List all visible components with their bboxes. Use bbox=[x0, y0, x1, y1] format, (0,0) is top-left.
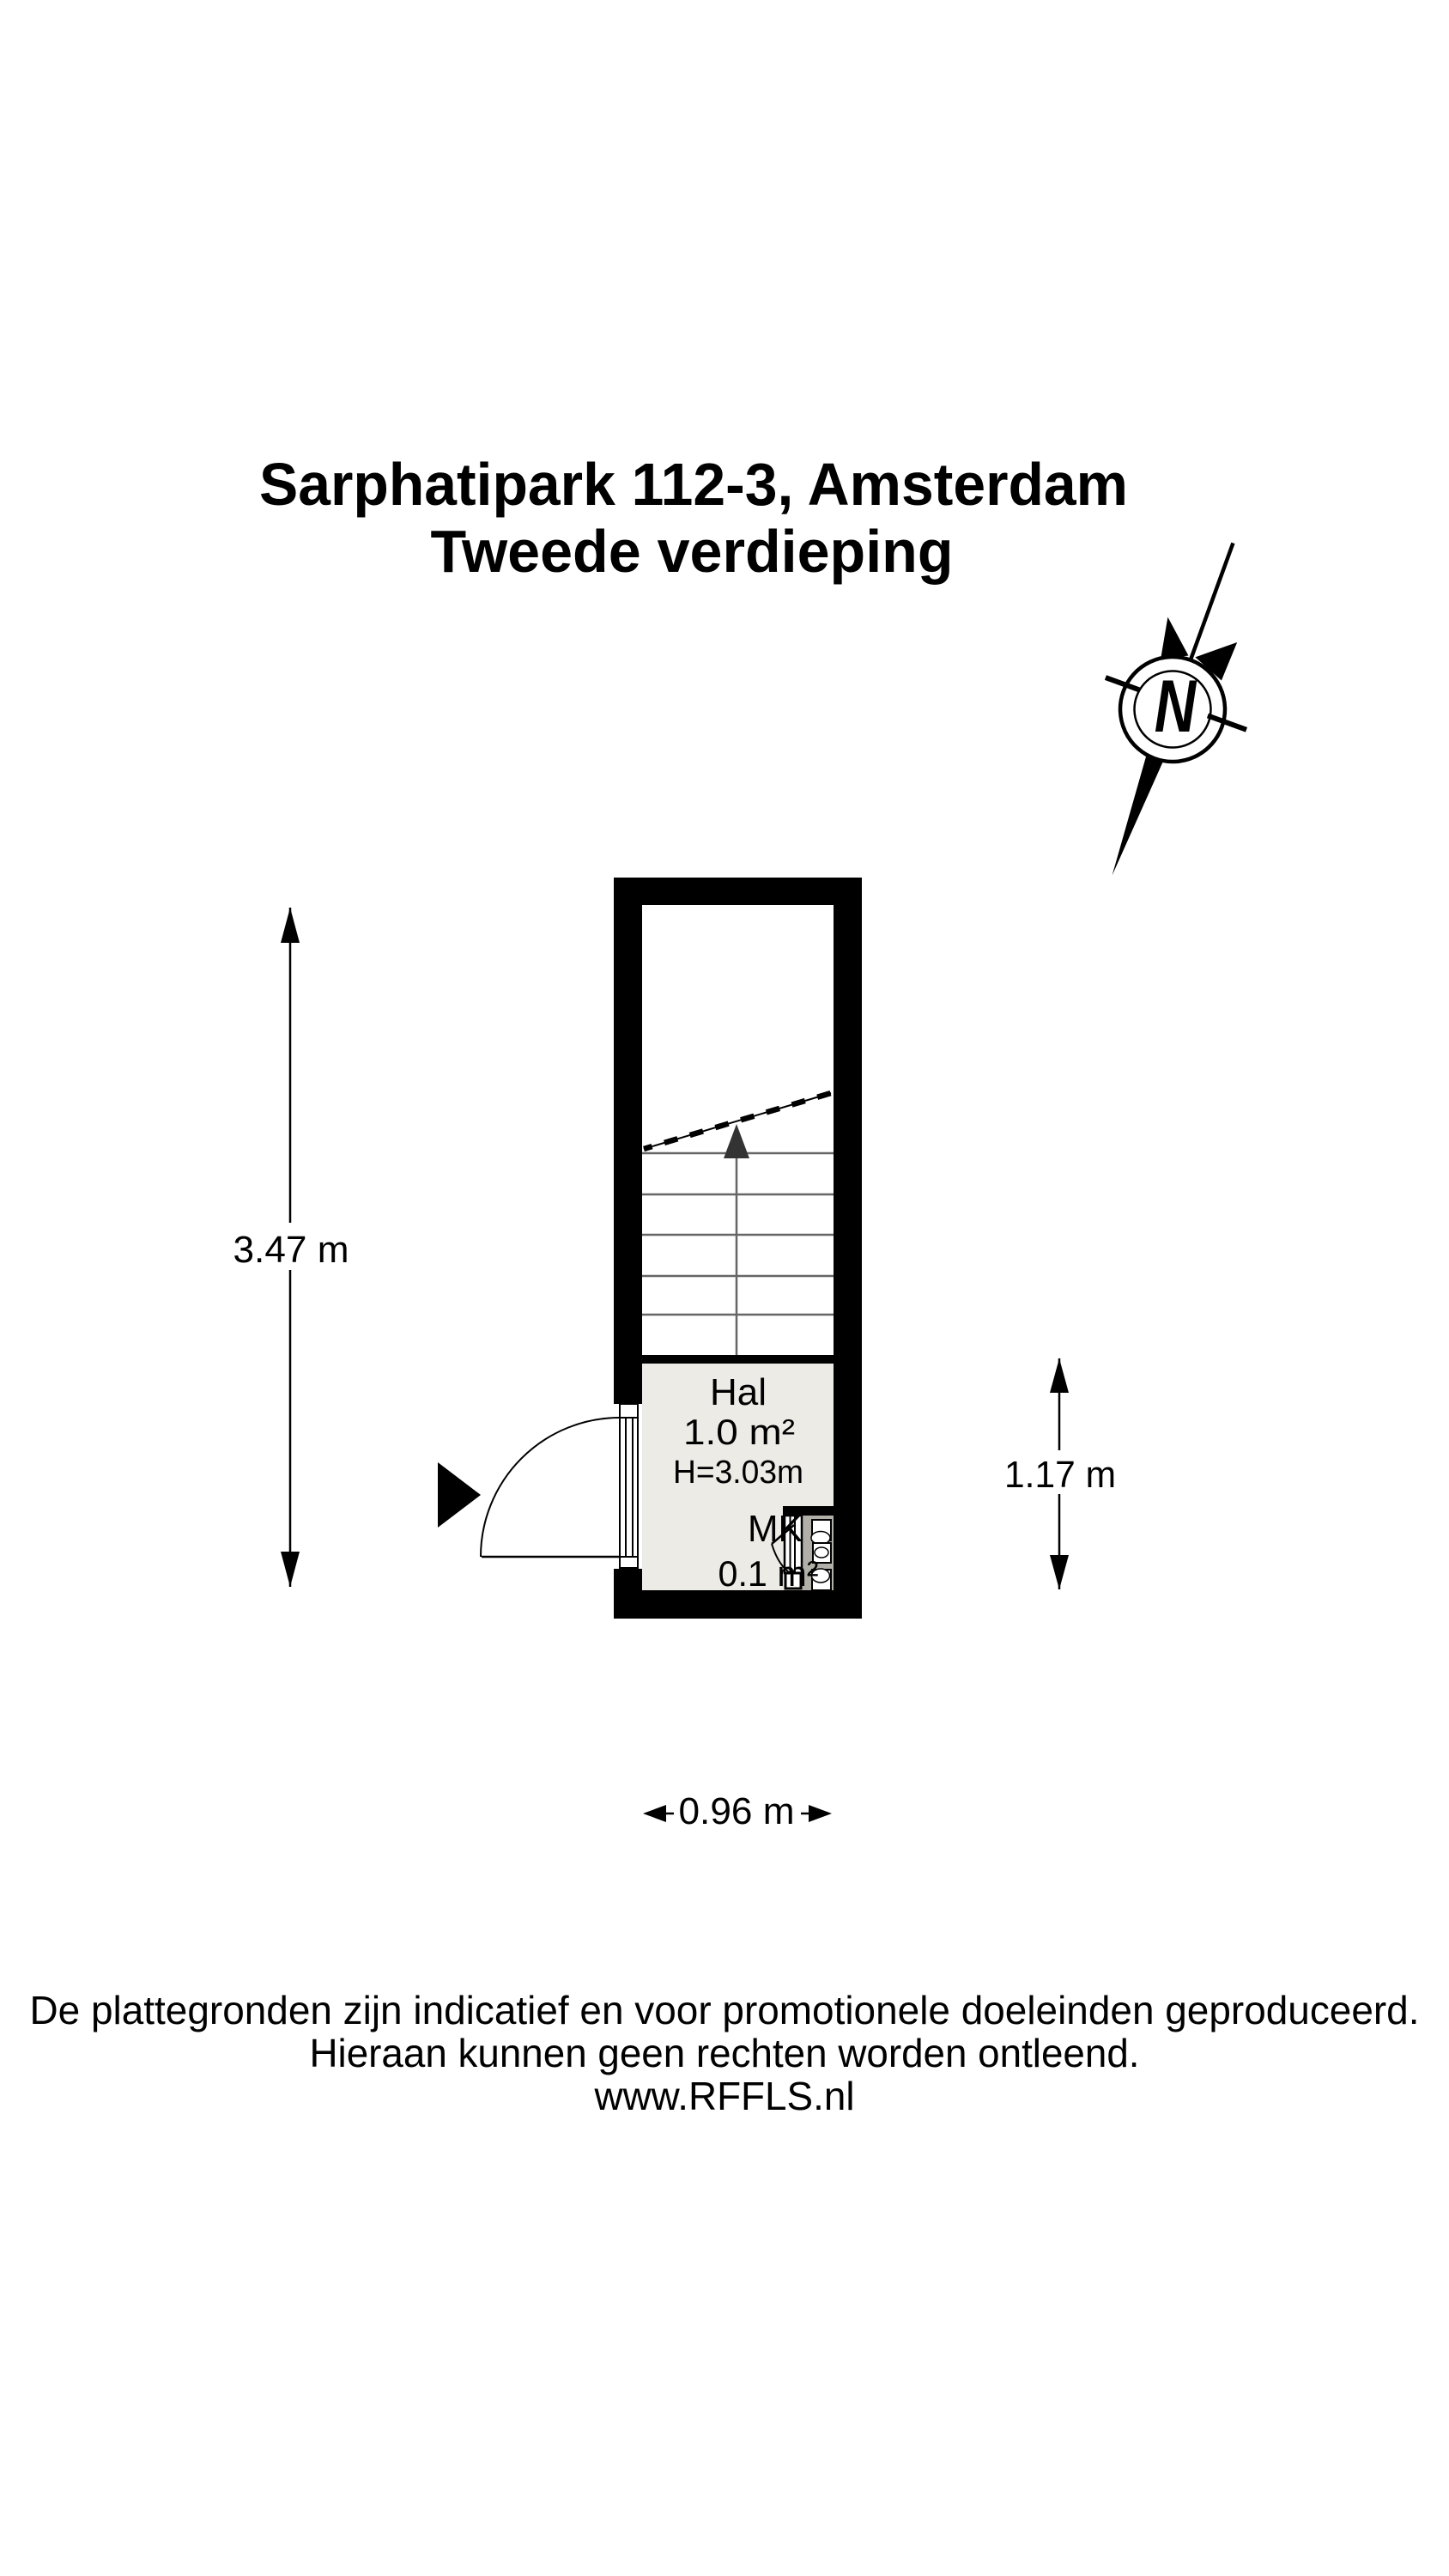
svg-text:1.0 m²: 1.0 m² bbox=[683, 1412, 795, 1452]
svg-text:0.1 m²: 0.1 m² bbox=[718, 1553, 819, 1594]
svg-text:MK: MK bbox=[748, 1508, 803, 1550]
svg-text:Hal: Hal bbox=[710, 1371, 767, 1413]
svg-text:N: N bbox=[1155, 665, 1197, 748]
svg-text:www.RFFLS.nl: www.RFFLS.nl bbox=[594, 2074, 855, 2118]
svg-text:3.47 m: 3.47 m bbox=[233, 1229, 349, 1271]
svg-text:0.96 m: 0.96 m bbox=[679, 1790, 795, 1832]
svg-text:De plattegronden zijn indicati: De plattegronden zijn indicatief en voor… bbox=[30, 1988, 1420, 2032]
svg-text:1.17 m: 1.17 m bbox=[1004, 1454, 1116, 1496]
svg-text:Tweede verdieping: Tweede verdieping bbox=[431, 518, 954, 585]
svg-text:Hieraan kunnen geen rechten wo: Hieraan kunnen geen rechten worden ontle… bbox=[310, 2031, 1140, 2075]
svg-text:Sarphatipark 112-3, Amsterdam: Sarphatipark 112-3, Amsterdam bbox=[259, 451, 1128, 518]
svg-text:H=3.03m: H=3.03m bbox=[673, 1455, 803, 1491]
